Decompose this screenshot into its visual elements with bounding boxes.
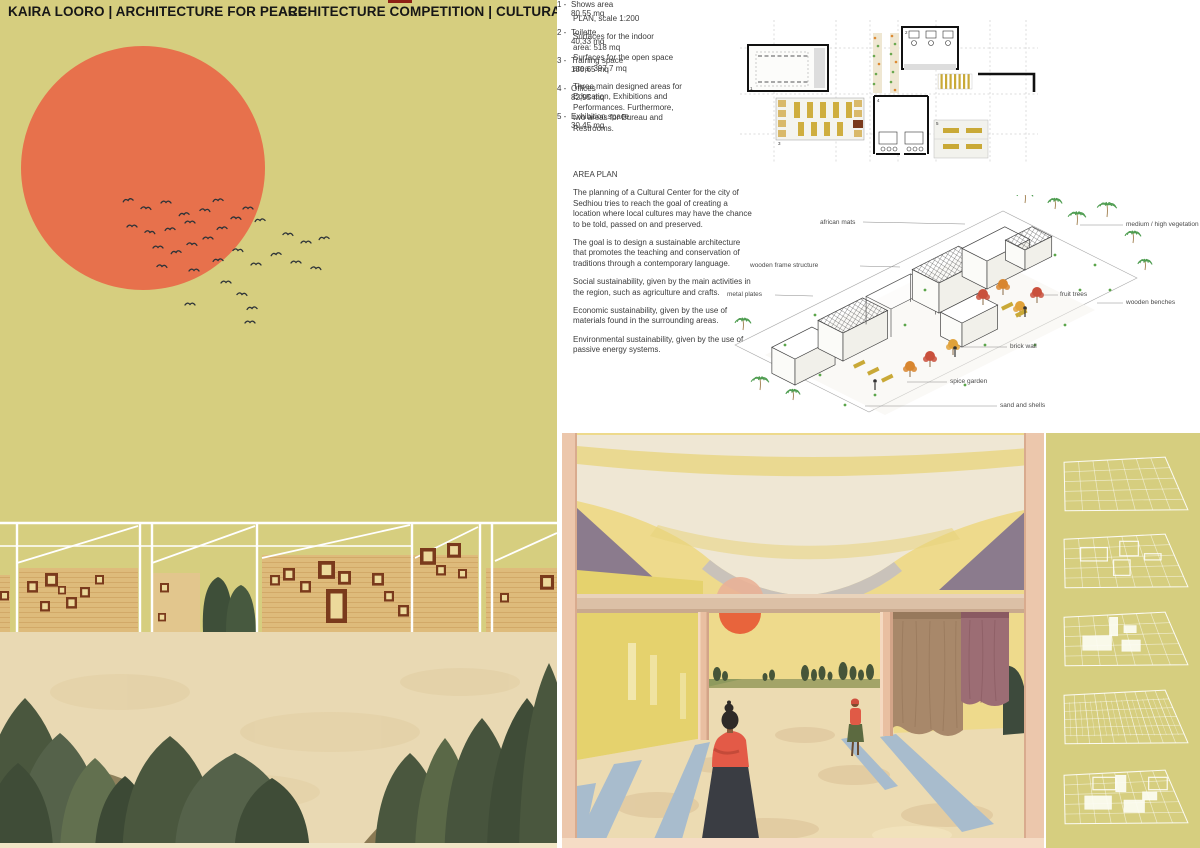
axo-label-fruit-trees: fruit trees — [1060, 291, 1087, 298]
axo-label-wooden-benches: wooden benches — [1126, 299, 1175, 306]
plan-benches — [938, 74, 972, 89]
frame-edge — [1024, 433, 1026, 848]
axo-label-spice-garden: spice garden — [950, 378, 987, 385]
plan-note: Three main designed areas for Education,… — [573, 82, 685, 134]
pavilion-column — [698, 612, 709, 740]
wall-segment — [152, 573, 200, 632]
plan-sheet: PLAN, scale 1:200 Surfaces for the indoo… — [557, 0, 1200, 433]
concept-diagram-volumes-outline — [1062, 532, 1192, 594]
hanging-fabric-plum — [961, 612, 1009, 706]
building-elevation-illustration — [0, 513, 557, 633]
concept-diagram-panel — [1046, 433, 1200, 848]
plan-wall — [978, 74, 1034, 92]
surface-line: area: 518 mq — [573, 43, 685, 53]
tree-icon — [226, 585, 256, 632]
baseboard-strip — [562, 838, 1044, 848]
red-edge-mark — [388, 0, 412, 3]
axo-label-african-mats: african mats — [820, 219, 855, 226]
plan-notes-block: PLAN, scale 1:200 Surfaces for the indoo… — [573, 14, 685, 142]
axonometric-drawing — [725, 195, 1165, 433]
bottom-strip — [0, 843, 557, 848]
concept-diagram-volumes-filled — [1062, 610, 1192, 672]
axo-label-metal-plates: metal plates — [727, 291, 762, 298]
plan-room-training — [776, 98, 864, 140]
axo-label-medium-high-vegetation: medium / high vegetation — [1126, 221, 1199, 228]
concept-diagram-combined — [1062, 768, 1192, 830]
interior-frame-left — [562, 433, 577, 848]
surface-line: area: 397,7 mq — [573, 64, 685, 74]
plan-heading: PLAN, scale 1:200 — [573, 14, 685, 24]
plan-garden-strip — [873, 33, 899, 93]
plan-room-exhibition — [934, 120, 988, 158]
foreground-landscape-illustration — [0, 632, 557, 848]
plan-room-bureau — [874, 96, 928, 154]
beam-highlight — [577, 594, 1029, 598]
svg-text:3: 3 — [778, 141, 781, 146]
surface-line: Surfaces for the open space — [573, 53, 685, 63]
area-plan-heading: AREA PLAN — [573, 170, 753, 180]
wall-segment — [19, 568, 138, 632]
floor-plan-drawing: 12345 — [738, 12, 1043, 172]
interior-perspective-render — [562, 433, 1044, 848]
pavilion-column — [880, 612, 893, 736]
hanging-fabric-brown — [892, 612, 963, 736]
birds-flock-illustration — [0, 0, 557, 520]
axo-label-wooden-frame-structure: wooden frame structure — [750, 262, 818, 269]
axo-label-sand-and-shells: sand and shells — [1000, 402, 1045, 409]
wall-segment — [0, 575, 10, 632]
cover-panel: KAIRA LOORO | ARCHITECTURE FOR PEACE ARC… — [0, 0, 557, 848]
concept-diagram-dense-grid — [1062, 688, 1192, 750]
plan-room-shows-area — [748, 45, 828, 91]
frame-edge — [575, 433, 577, 848]
interior-frame-right — [1024, 433, 1044, 848]
competition-board: KAIRA LOORO | ARCHITECTURE FOR PEACE ARC… — [0, 0, 1200, 848]
plan-room-toilette — [902, 27, 958, 70]
axo-label-brick-wall: brick wall — [1010, 343, 1037, 350]
surface-line: Surfaces for the indoor — [573, 32, 685, 42]
concept-diagram-grid — [1062, 455, 1192, 517]
